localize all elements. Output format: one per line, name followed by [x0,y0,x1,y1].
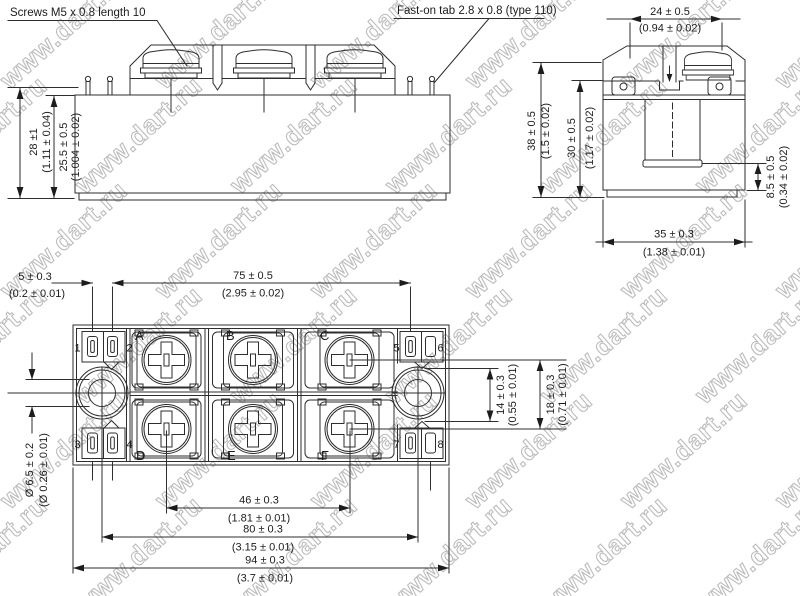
tab-label-8: 8 [437,439,443,451]
dim-35-mm: 35 ± 0.3 [654,229,694,241]
watermark-text: www.dart.ru [458,175,598,305]
dim-24-mm: 24 ± 0.5 [650,6,690,18]
watermark-text: www.dart.ru [148,0,288,95]
tab-label-5: 5 [393,343,399,355]
watermark-text: www.dart.ru [613,385,753,515]
faston-pin [85,76,90,95]
watermark-text: www.dart.ru [148,175,288,305]
dim-14-inch: (0.55 ± 0.01) [507,364,519,426]
terminal-label-C: C [320,328,329,343]
dim-14-mm: 14 ± 0.3 [495,375,507,415]
dim-18-mm: 18 ± 0.3 [545,375,557,415]
watermark-text: www.dart.ru [0,385,133,515]
terminal-label-F: F [321,448,329,463]
dim-28-mm: 28 ±1 [28,128,40,155]
technical-drawing: www.dart.ruwww.dart.ruwww.dart.ruwww.dar… [0,0,800,596]
dim-38-inch: (1.5 ± 0.02) [540,103,552,159]
tab-label-7: 7 [393,439,399,451]
faston-pin [107,76,112,95]
dim-80-mm: 80 ± 0.3 [243,524,283,536]
dim-24-inch: (0.94 ± 0.02) [639,23,701,35]
faston-pin [407,76,412,95]
tab-label-1: 1 [74,343,80,355]
end-recess-bottom [643,160,702,167]
dim-38-mm: 38 ± 0.5 [526,111,538,151]
tab-label-2: 2 [126,343,132,355]
dim-25-5-mm: 25.5 ± 0.5 [58,123,70,172]
dim-6-5-inch: (Ø 0.26 ± 0.01) [38,433,50,507]
side-screw [234,50,295,112]
dim-75-inch: (2.95 ± 0.02) [222,288,284,300]
watermark-text: www.dart.ru [68,70,208,200]
dim-94-mm: 94 ± 0.3 [245,555,285,567]
watermark-text: www.dart.ru [458,385,598,515]
watermark-text: www.dart.ru [223,70,363,200]
terminal-label-D: D [136,448,145,463]
dim-8-5-inch: (0.34 ± 0.02) [778,146,790,208]
dim-28-inch: (1.11 ± 0.04) [41,111,53,172]
dim-5-inch: (0.2 ± 0.01) [9,288,65,300]
dim-75-mm: 75 ± 0.5 [233,270,273,282]
dim-6-5-mm: Ø 6.5 ± 0.2 [24,443,36,497]
screws-callout-label: Screws M5 x 0.8 length 10 [10,7,146,19]
watermark-text: www.dart.ru [378,490,518,596]
watermark-text: www.dart.ru [768,385,800,515]
dim-30-inch: (1.17 ± 0.02) [584,107,596,169]
tab-label-3: 3 [74,439,80,451]
dim-30-mm: 30 ± 0.5 [566,118,578,158]
dim-35-inch: (1.38 ± 0.01) [643,247,705,259]
watermark-text: www.dart.ru [303,175,443,305]
tab-label-4: 4 [126,439,132,451]
terminal-label-A: A [135,328,144,343]
faston-pin [429,76,434,95]
dim-8-5-mm: 8.5 ± 0.5 [765,156,777,199]
terminal-label-B: B [226,328,235,343]
dim-5-mm: 5 ± 0.3 [18,271,52,283]
watermark-text: www.dart.ru [378,70,518,200]
dim-25-5-inch: (1.004 ± 0.02) [70,113,82,181]
terminal-label-E: E [227,448,236,463]
dim-80-inch: (3.15 ± 0.01) [232,542,294,554]
dim-18-inch: (0.71 ± 0.01) [557,363,569,425]
watermark-text: www.dart.ru [68,490,208,596]
faston-callout-label: Fast-on tab 2.8 x 0.8 (type 110) [397,5,557,17]
end-screw [682,52,733,80]
tab-label-6: 6 [437,343,443,355]
watermark-text: www.dart.ru [533,490,673,596]
dim-46-mm: 46 ± 0.3 [239,495,279,507]
dim-94-inch: (3.7 ± 0.01) [237,573,293,585]
